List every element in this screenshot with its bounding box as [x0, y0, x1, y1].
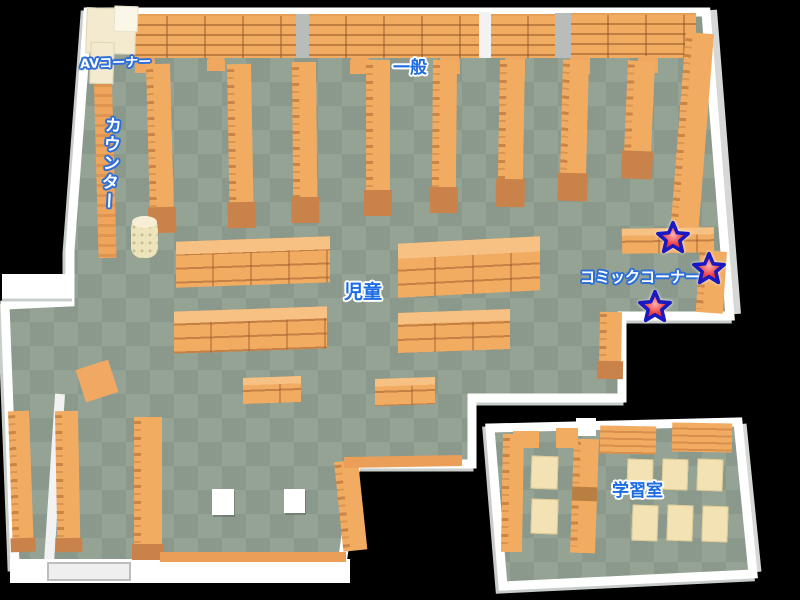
star-marker-2[interactable] — [691, 251, 727, 287]
wall-shelf — [672, 422, 732, 452]
study-desk — [661, 459, 688, 491]
star-marker-1[interactable] — [655, 220, 691, 256]
bookshelf-row — [491, 14, 555, 58]
low-bookshelf — [398, 309, 510, 353]
bookshelf — [134, 417, 162, 559]
av-cabinet — [114, 6, 139, 33]
bookshelf — [559, 60, 589, 201]
table — [284, 489, 305, 513]
bookshelf — [146, 64, 174, 233]
divider-shelf — [570, 439, 599, 554]
wall-pillar — [555, 13, 571, 58]
bookshelf — [55, 411, 80, 551]
bookshelf-row — [309, 14, 479, 58]
low-shelf-strip — [344, 455, 462, 468]
label-general: 一般 — [393, 60, 427, 78]
low-shelf-strip — [160, 552, 346, 562]
bookshelf — [227, 64, 254, 227]
label-children: 児童 — [344, 283, 382, 303]
bookshelf — [292, 62, 317, 222]
entrance-wall-left — [2, 274, 72, 300]
bookshelf — [623, 60, 655, 178]
study-desk — [530, 456, 558, 490]
low-bookshelf — [398, 236, 540, 297]
study-desk — [530, 499, 558, 535]
bookshelf — [497, 60, 525, 206]
label-study-room: 学習室 — [612, 483, 663, 501]
label-counter: カウンター — [97, 116, 120, 212]
low-bookshelf — [174, 306, 327, 353]
star-marker-3[interactable] — [637, 289, 673, 325]
shelf-end — [207, 58, 225, 71]
bookshelf — [366, 60, 390, 215]
library-floor-map: AVコーナー カウンター 一般 児童 コミックコーナー 学習室 — [0, 0, 800, 600]
display-column — [131, 216, 158, 258]
wall-pillar — [296, 14, 309, 58]
study-desk — [666, 505, 693, 542]
study-desk — [701, 506, 728, 543]
low-bookshelf — [375, 377, 435, 406]
study-wall-pillar — [576, 418, 596, 436]
bookshelf — [599, 312, 622, 378]
study-desk — [631, 505, 658, 542]
low-bookshelf — [176, 236, 330, 287]
label-av-corner: AVコーナー — [80, 56, 152, 72]
bookshelf-row — [130, 14, 296, 58]
study-desk — [696, 459, 723, 492]
shelf — [513, 431, 539, 448]
label-comic-corner: コミックコーナー — [580, 270, 700, 286]
entrance-door — [48, 563, 130, 580]
bookshelf — [432, 60, 457, 212]
bookshelf — [501, 434, 524, 552]
table — [212, 489, 234, 515]
low-bookshelf — [243, 376, 301, 404]
wall-pillar — [479, 12, 491, 58]
bookshelf-row — [571, 13, 696, 58]
wall-shelf — [600, 426, 656, 455]
shelf — [556, 428, 578, 448]
